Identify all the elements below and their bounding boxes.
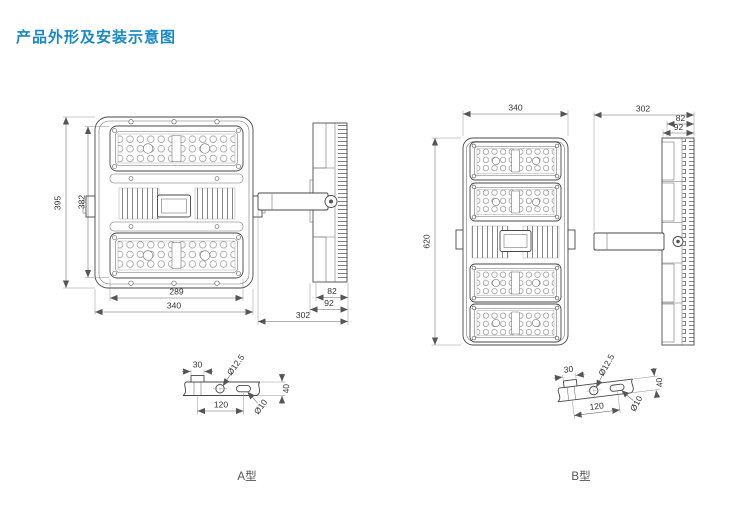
dim-b-slot-diameter: Ø10 (628, 394, 645, 413)
dim-a-width-total: 302 (296, 310, 310, 320)
dim-b-width: 340 (508, 103, 522, 113)
dim-b-depth-body: 92 (674, 122, 684, 132)
screw-icon (172, 281, 176, 285)
dim-a-depth-module: 82 (327, 286, 337, 296)
bracket-tab (191, 376, 204, 383)
type-b-label: B型 (551, 468, 611, 484)
led-module (470, 304, 561, 342)
screw-icon (129, 120, 133, 124)
dim-b-width-total: 302 (636, 104, 650, 114)
dim-b-hole-spacing: 120 (589, 400, 605, 412)
screw-icon (172, 120, 176, 124)
type-b-bracket-detail: 30 Ø12.5 Ø10 120 40 (552, 346, 668, 423)
dim-b-plate-width: 40 (654, 377, 665, 388)
led-module (110, 233, 243, 278)
drawing-canvas: 395 382 289 340 (0, 0, 742, 524)
heatsink-fins (195, 188, 235, 219)
nameplate (158, 195, 191, 217)
dim-a-depth-body: 92 (324, 298, 334, 308)
dim-a-hole-diameter: Ø12.5 (225, 352, 247, 377)
type-b-side-view (594, 138, 694, 345)
bracket-tab (563, 379, 577, 387)
dim-a-plate-width: 40 (281, 384, 291, 394)
led-module (470, 264, 561, 302)
mount-tab (86, 196, 95, 217)
dim-b-tab-width: 30 (563, 364, 574, 375)
type-a-label: A型 (217, 468, 277, 484)
nameplate (500, 231, 531, 252)
mounting-arm (258, 193, 328, 210)
mount-tab (568, 230, 575, 249)
dim-a-height-outer: 395 (53, 196, 63, 210)
dim-b-hole-diameter: Ø12.5 (596, 352, 616, 377)
screw-icon (215, 120, 219, 124)
screw-icon (215, 281, 219, 285)
mounting-slot (237, 386, 251, 392)
heatsink-teeth (683, 139, 694, 344)
type-a-front-view (83, 117, 265, 288)
dim-a-tab-width: 30 (193, 360, 203, 370)
dim-b-height: 620 (422, 234, 432, 248)
dim-a-height-inner: 382 (77, 195, 87, 209)
mounting-slot (610, 384, 625, 392)
mounting-arm (594, 233, 664, 250)
mount-tab (456, 230, 463, 249)
led-module (470, 183, 561, 221)
dim-a-width-inner: 289 (169, 287, 183, 297)
type-b-front-view (456, 138, 575, 345)
dim-a-hole-spacing: 120 (214, 400, 228, 410)
led-module (470, 142, 561, 180)
type-a-bracket-detail: 30 Ø12.5 Ø10 120 40 (182, 352, 291, 416)
led-module (110, 126, 243, 171)
drawing-page: 产品外形及安装示意图 (0, 0, 742, 524)
screw-icon (129, 281, 133, 285)
heatsink-fins (119, 188, 159, 219)
type-a-side-view (258, 123, 347, 282)
dim-a-width-outer: 340 (167, 301, 181, 311)
